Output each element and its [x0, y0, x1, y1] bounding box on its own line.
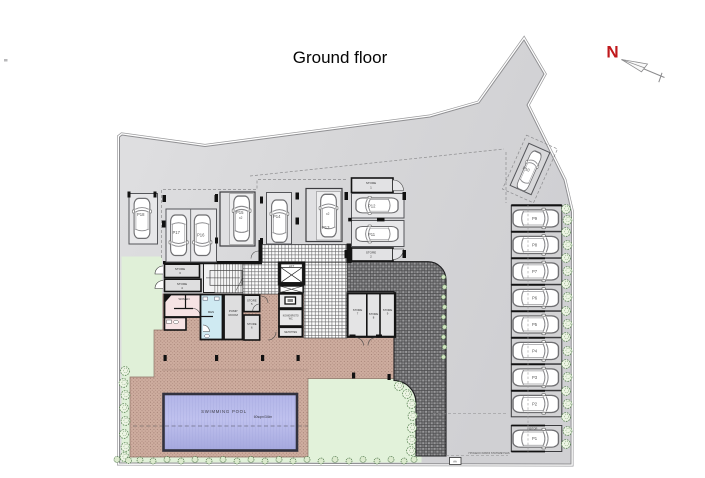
svg-text:YPOGEIOI XWROI STAThMEYSHS: YPOGEIOI XWROI STAThMEYSHS	[468, 451, 510, 455]
svg-text:ROOM: ROOM	[229, 313, 239, 317]
svg-text:WC: WC	[289, 319, 293, 321]
svg-text:P12: P12	[368, 204, 376, 209]
svg-text:STORE: STORE	[366, 181, 376, 185]
svg-text:P5: P5	[532, 322, 538, 327]
svg-text:AA: AA	[453, 460, 457, 464]
svg-text:P9: P9	[532, 216, 538, 221]
svg-text:KOINOXRISTO: KOINOXRISTO	[283, 316, 299, 318]
svg-text:P1: P1	[532, 436, 538, 441]
svg-text:P6: P6	[532, 296, 538, 301]
svg-text:P13: P13	[322, 225, 330, 230]
svg-text:MEN: MEN	[208, 310, 214, 314]
svg-text:P2: P2	[532, 402, 538, 407]
svg-text:VISITOR: VISITOR	[527, 427, 537, 431]
svg-text:P18: P18	[137, 212, 145, 217]
svg-text:SWIMMING POOL: SWIMMING POOL	[201, 409, 247, 414]
svg-text:P11: P11	[368, 232, 376, 237]
svg-text:P8: P8	[532, 243, 538, 248]
svg-text:WOMEN: WOMEN	[178, 297, 189, 301]
svg-text:60sqm/34lm: 60sqm/34lm	[254, 415, 273, 419]
svg-text:N: N	[606, 43, 618, 62]
svg-text:P16: P16	[197, 233, 205, 238]
svg-text:P7: P7	[532, 269, 538, 274]
svg-text:P3: P3	[532, 375, 538, 380]
svg-text:P17: P17	[173, 230, 181, 235]
svg-text:LIFT: LIFT	[289, 264, 295, 268]
svg-text:P4: P4	[532, 349, 538, 354]
svg-text:P14: P14	[273, 214, 281, 219]
svg-text:METRHTES: METRHTES	[284, 332, 297, 334]
svg-text:x2: x2	[239, 216, 243, 220]
svg-text:P15: P15	[236, 210, 244, 215]
svg-text:x2: x2	[326, 212, 330, 216]
svg-text:Ground floor: Ground floor	[293, 48, 388, 67]
